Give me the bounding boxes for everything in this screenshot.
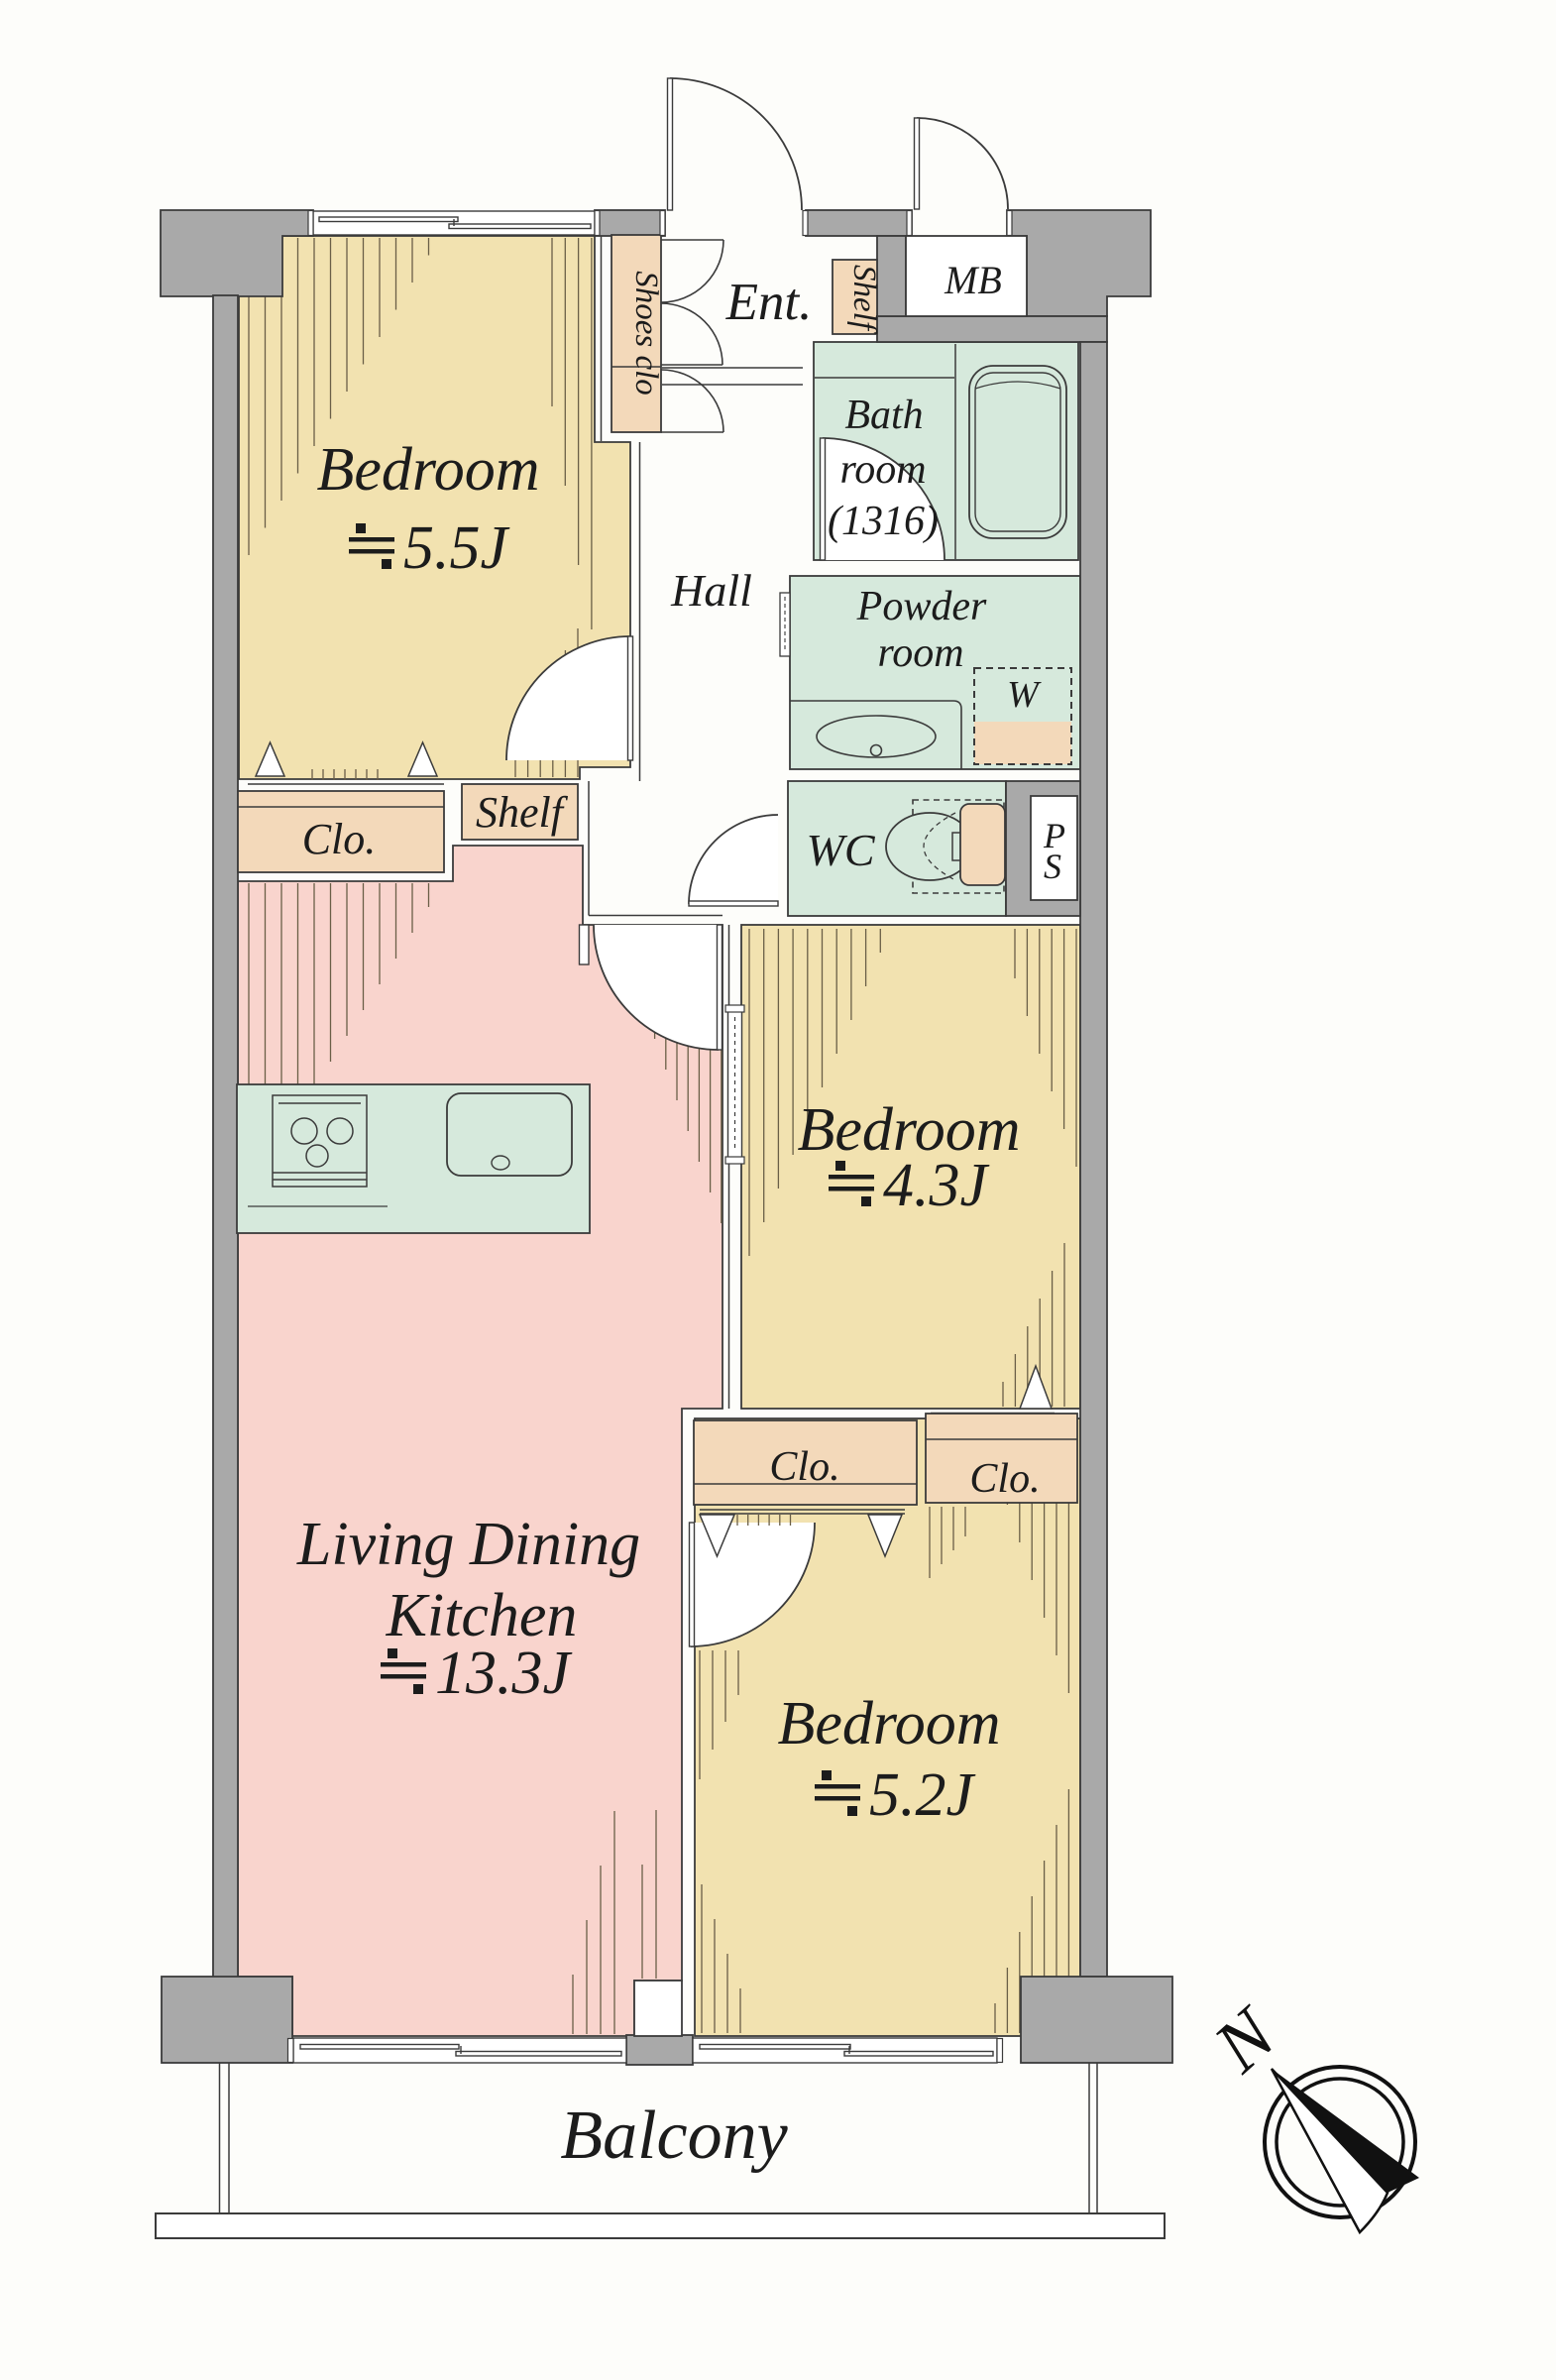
svg-text:5.5J: 5.5J [403, 514, 510, 582]
svg-text:Powder: Powder [856, 584, 987, 629]
svg-text:Clo.: Clo. [302, 815, 377, 863]
svg-text:Bedroom: Bedroom [317, 436, 540, 504]
svg-text:S: S [1044, 847, 1061, 886]
svg-text:Bedroom: Bedroom [778, 1690, 1001, 1757]
svg-text:Balcony: Balcony [560, 2097, 788, 2174]
svg-text:MB: MB [944, 258, 1002, 302]
svg-text:4.3J: 4.3J [883, 1152, 990, 1219]
svg-text:room: room [839, 447, 926, 493]
svg-text:Hall: Hall [670, 565, 752, 616]
svg-text:Shoes clo: Shoes clo [628, 271, 664, 396]
svg-text:Shelf: Shelf [476, 788, 569, 837]
svg-text:5.2J: 5.2J [869, 1761, 976, 1829]
svg-text:(1316): (1316) [828, 499, 939, 544]
svg-text:Clo.: Clo. [969, 1456, 1040, 1502]
svg-text:Shelf: Shelf [846, 265, 882, 334]
svg-text:room: room [877, 630, 963, 676]
svg-text:13.3J: 13.3J [435, 1640, 573, 1707]
svg-text:Living Dining: Living Dining [296, 1511, 640, 1578]
svg-text:WC: WC [807, 825, 876, 875]
svg-text:Clo.: Clo. [769, 1444, 839, 1490]
svg-text:Ent.: Ent. [725, 274, 813, 331]
svg-text:W: W [1007, 674, 1042, 716]
svg-text:Bath: Bath [844, 393, 923, 438]
